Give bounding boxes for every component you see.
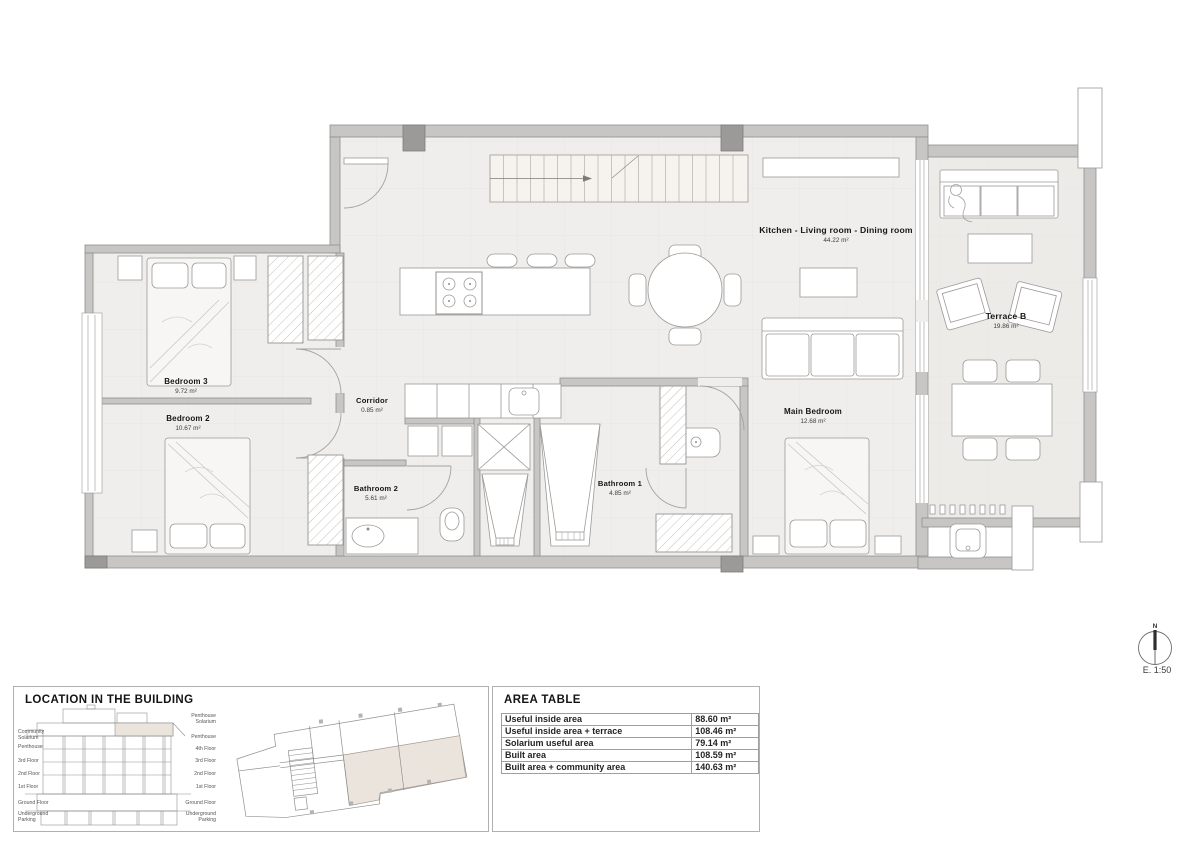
floor-label-left: Community Solarium — [18, 729, 52, 741]
floor-label-left: Underground Parking — [18, 811, 52, 823]
area-table-row: Built area 108.59 m² — [502, 750, 759, 762]
area-row-label: Useful inside area + terrace — [502, 726, 692, 738]
area-row-label: Useful inside area — [502, 714, 692, 726]
floor-plan-drawing — [0, 0, 1190, 620]
terrace-sofa — [940, 170, 1058, 222]
floor-label-right: Ground Floor — [172, 800, 216, 806]
floor-label-left: Ground Floor — [18, 800, 52, 806]
key-plan-drawing — [224, 699, 482, 825]
north-needle-icon — [1153, 630, 1156, 650]
area-table: Useful inside area 88.60 m² Useful insid… — [501, 713, 759, 774]
area-row-label: Built area — [502, 750, 692, 762]
area-row-value: 88.60 m² — [692, 714, 759, 726]
terrace-coffee-table — [968, 234, 1032, 263]
location-panel: LOCATION IN THE BUILDING — [13, 686, 489, 832]
living-sofa — [762, 318, 903, 379]
coffee-table — [800, 268, 857, 297]
area-row-label: Solarium useful area — [502, 738, 692, 750]
stairs — [490, 155, 748, 202]
room-label-bathroom-2: Bathroom 2 5.61 m² — [354, 484, 398, 503]
area-table-row: Solarium useful area 79.14 m² — [502, 738, 759, 750]
pillar-top-right — [1078, 88, 1102, 168]
area-table-row: Useful inside area 88.60 m² — [502, 714, 759, 726]
north-label: N — [1153, 623, 1158, 630]
compass: N — [1128, 608, 1188, 672]
room-label-bedroom-2: Bedroom 2 10.67 m² — [166, 414, 210, 433]
floor-label-right: 4th Floor — [172, 746, 216, 752]
pillar-bottom-right — [1080, 482, 1102, 542]
floor-label-right: 2nd Floor — [172, 771, 216, 777]
area-table-row: Built area + community area 140.63 m² — [502, 762, 759, 774]
building-section-drawing — [25, 701, 195, 827]
floor-label-left: 1st Floor — [18, 784, 52, 790]
outdoor-sink — [950, 524, 986, 558]
area-row-value: 79.14 m² — [692, 738, 759, 750]
floor-label-right: Penthouse — [172, 734, 216, 740]
floor-label-left: 3rd Floor — [18, 758, 52, 764]
area-row-value: 140.63 m² — [692, 762, 759, 774]
sideboard — [763, 158, 899, 177]
area-table-row: Useful inside area + terrace 108.46 m² — [502, 726, 759, 738]
scale-label: E. 1:50 — [1143, 665, 1172, 675]
room-label-main-bedroom: Main Bedroom 12.68 m² — [784, 407, 842, 426]
kitchen-counter — [405, 384, 561, 418]
area-row-value: 108.59 m² — [692, 750, 759, 762]
room-label-bedroom-3: Bedroom 3 9.72 m² — [164, 377, 208, 396]
floor-label-right: 3rd Floor — [172, 758, 216, 764]
room-label-bathroom-1: Bathroom 1 4.85 m² — [598, 479, 642, 498]
area-table-title: AREA TABLE — [504, 694, 581, 706]
floor-label-left: Penthouse — [18, 744, 52, 750]
room-label-terrace-b: Terrace B 19.86 m² — [986, 312, 1027, 331]
floor-label-right: Underground Parking — [172, 811, 216, 823]
room-label-kitchen-living-dining: Kitchen - Living room - Dining room 44.2… — [759, 226, 913, 245]
area-row-label: Built area + community area — [502, 762, 692, 774]
area-row-value: 108.46 m² — [692, 726, 759, 738]
area-table-panel: AREA TABLE Useful inside area 88.60 m² U… — [492, 686, 760, 832]
pillar-terrace-bottom — [1012, 506, 1033, 570]
floor-label-left: 2nd Floor — [18, 771, 52, 777]
floor-label-right: 1st Floor — [172, 784, 216, 790]
room-label-corridor: Corridor 0.85 m² — [356, 396, 388, 415]
floor-label-right: Penthouse Solarium — [172, 713, 216, 725]
floor-plan-sheet: Bedroom 3 9.72 m² Bedroom 2 10.67 m² Cor… — [0, 0, 1190, 841]
